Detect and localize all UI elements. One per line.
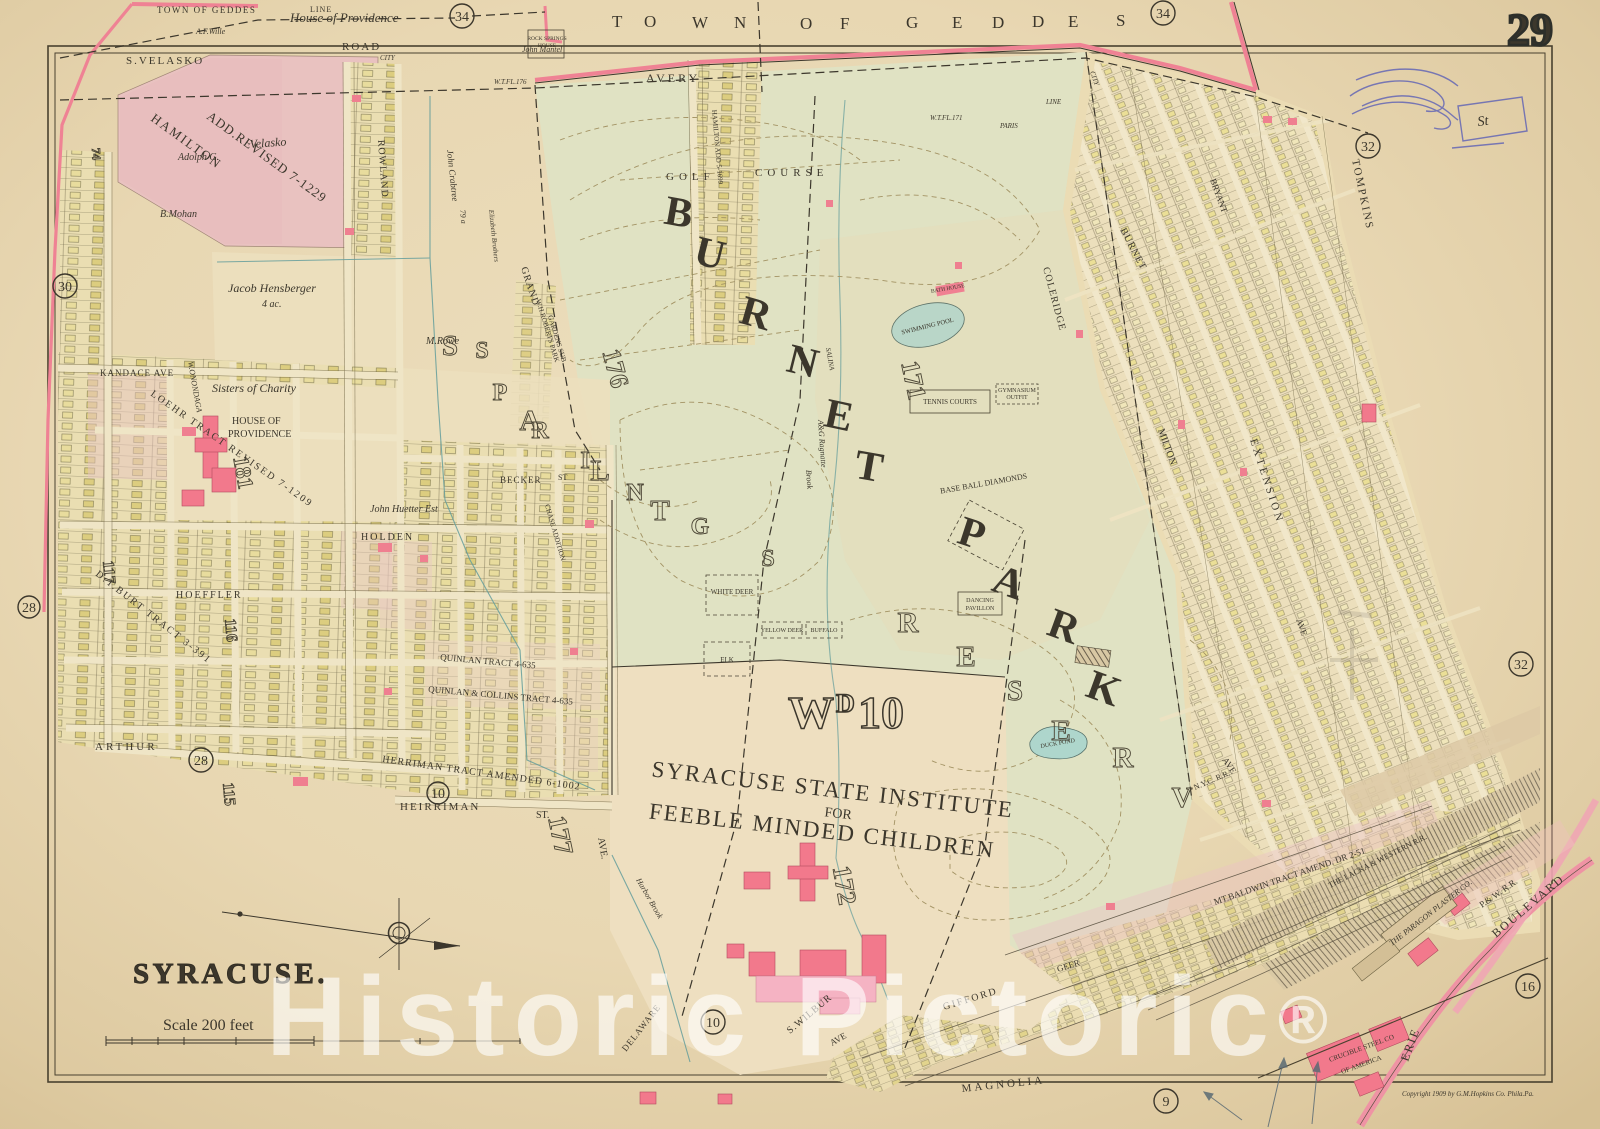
svg-text:R: R xyxy=(1113,742,1135,774)
svg-text:O: O xyxy=(644,12,656,31)
svg-text:W.T.FL.171: W.T.FL.171 xyxy=(930,114,962,122)
svg-text:PAVILLON: PAVILLON xyxy=(966,606,995,612)
svg-text:28: 28 xyxy=(22,601,36,616)
svg-text:HOLDEN: HOLDEN xyxy=(361,532,414,543)
svg-text:PROVIDENCE: PROVIDENCE xyxy=(228,429,291,440)
svg-text:HOEFFLER: HOEFFLER xyxy=(176,590,243,601)
svg-text:Adolph G.: Adolph G. xyxy=(177,152,219,163)
svg-text:OUTFIT: OUTFIT xyxy=(1006,395,1028,401)
svg-text:32: 32 xyxy=(1514,658,1528,673)
svg-text:ST.: ST. xyxy=(536,810,549,821)
svg-text:G: G xyxy=(691,514,710,540)
svg-text:HOUSE OF: HOUSE OF xyxy=(232,416,281,427)
svg-text:ST: ST xyxy=(558,473,567,482)
svg-text:34: 34 xyxy=(455,10,469,25)
svg-text:34: 34 xyxy=(1156,7,1170,22)
svg-text:T: T xyxy=(650,495,669,527)
svg-text:N: N xyxy=(734,13,746,32)
svg-text:9: 9 xyxy=(1163,1095,1170,1110)
svg-text:COURSE: COURSE xyxy=(755,167,828,179)
svg-text:John Huetter Est: John Huetter Est xyxy=(370,504,438,515)
svg-text:28: 28 xyxy=(194,754,208,769)
svg-text:YELLOW DEER: YELLOW DEER xyxy=(761,628,803,634)
svg-text:4 ac.: 4 ac. xyxy=(262,299,281,310)
svg-text:Brook: Brook xyxy=(804,470,814,490)
svg-text:ROCK SPRINGS: ROCK SPRINGS xyxy=(527,36,566,42)
svg-text:30: 30 xyxy=(58,280,72,295)
svg-text:D: D xyxy=(1032,12,1044,31)
svg-text:10: 10 xyxy=(431,787,445,802)
svg-text:B.Mohan: B.Mohan xyxy=(160,209,197,220)
svg-text:E: E xyxy=(952,13,962,32)
svg-text:DANCING: DANCING xyxy=(966,598,994,604)
svg-text:32: 32 xyxy=(1361,140,1375,155)
svg-text:I: I xyxy=(580,448,589,474)
svg-text:A.F.Wille: A.F.Wille xyxy=(195,27,226,36)
svg-text:TOWN OF GEDDES: TOWN OF GEDDES xyxy=(157,5,256,15)
svg-text:D: D xyxy=(836,689,855,718)
svg-text:P: P xyxy=(493,380,508,406)
svg-text:W.T.FL.176: W.T.FL.176 xyxy=(494,78,527,86)
svg-text:HEIRRIMAN: HEIRRIMAN xyxy=(400,801,480,813)
svg-text:Sisters of Charity: Sisters of Charity xyxy=(212,381,297,395)
svg-text:S: S xyxy=(1007,675,1023,707)
svg-text:LINE: LINE xyxy=(1045,98,1062,106)
svg-text:Velasko: Velasko xyxy=(249,134,287,151)
svg-text:KANDACE AVE: KANDACE AVE xyxy=(100,368,174,378)
svg-text:R: R xyxy=(531,418,549,444)
svg-text:116: 116 xyxy=(221,618,240,643)
svg-text:16: 16 xyxy=(1521,980,1535,995)
svg-text:HOUSE: HOUSE xyxy=(538,43,557,49)
svg-text:V: V xyxy=(1172,782,1193,814)
svg-text:BUFFALO: BUFFALO xyxy=(811,628,839,634)
svg-text:GYMNASIUM: GYMNASIUM xyxy=(998,388,1036,394)
svg-text:CITY: CITY xyxy=(380,54,396,62)
svg-text:House of Providence: House of Providence xyxy=(289,10,399,25)
svg-text:S: S xyxy=(475,338,488,364)
svg-text:AVERY: AVERY xyxy=(646,71,700,85)
svg-text:F: F xyxy=(840,14,849,33)
svg-text:W: W xyxy=(692,13,709,32)
svg-text:T: T xyxy=(612,12,623,31)
svg-text:L: L xyxy=(590,455,609,487)
svg-text:BECKER: BECKER xyxy=(500,475,542,485)
svg-text:O: O xyxy=(800,14,812,33)
svg-text:ARTHUR: ARTHUR xyxy=(95,741,158,753)
svg-text:Copyright 1909 by G.M.Hopkins: Copyright 1909 by G.M.Hopkins Co. Phila.… xyxy=(1402,1090,1534,1098)
svg-text:PARIS: PARIS xyxy=(999,122,1018,130)
svg-text:E: E xyxy=(956,641,975,673)
svg-text:W: W xyxy=(788,687,834,738)
svg-text:Scale 200 feet: Scale 200 feet xyxy=(163,1017,254,1034)
svg-text:R: R xyxy=(898,607,920,639)
svg-text:M.Rowe: M.Rowe xyxy=(425,336,460,347)
svg-text:S.VELASKO: S.VELASKO xyxy=(126,55,204,67)
svg-text:29: 29 xyxy=(1507,4,1553,55)
svg-text:GOLF: GOLF xyxy=(666,171,715,183)
svg-text:E: E xyxy=(1068,12,1078,31)
svg-text:10: 10 xyxy=(858,687,904,738)
svg-text:ROAD: ROAD xyxy=(342,41,381,53)
svg-text:S: S xyxy=(1116,11,1125,30)
svg-text:115: 115 xyxy=(219,782,238,807)
svg-text:Jacob Hensberger: Jacob Hensberger xyxy=(228,281,316,295)
svg-text:TENNIS COURTS: TENNIS COURTS xyxy=(923,398,977,406)
svg-text:S: S xyxy=(761,546,774,572)
svg-text:79 a: 79 a xyxy=(458,209,468,224)
svg-text:N: N xyxy=(626,480,644,506)
svg-text:74: 74 xyxy=(89,148,103,160)
svg-text:ELK: ELK xyxy=(720,656,734,664)
svg-text:WHITE DEER: WHITE DEER xyxy=(711,588,754,596)
svg-text:G: G xyxy=(906,13,918,32)
svg-text:D: D xyxy=(992,13,1004,32)
